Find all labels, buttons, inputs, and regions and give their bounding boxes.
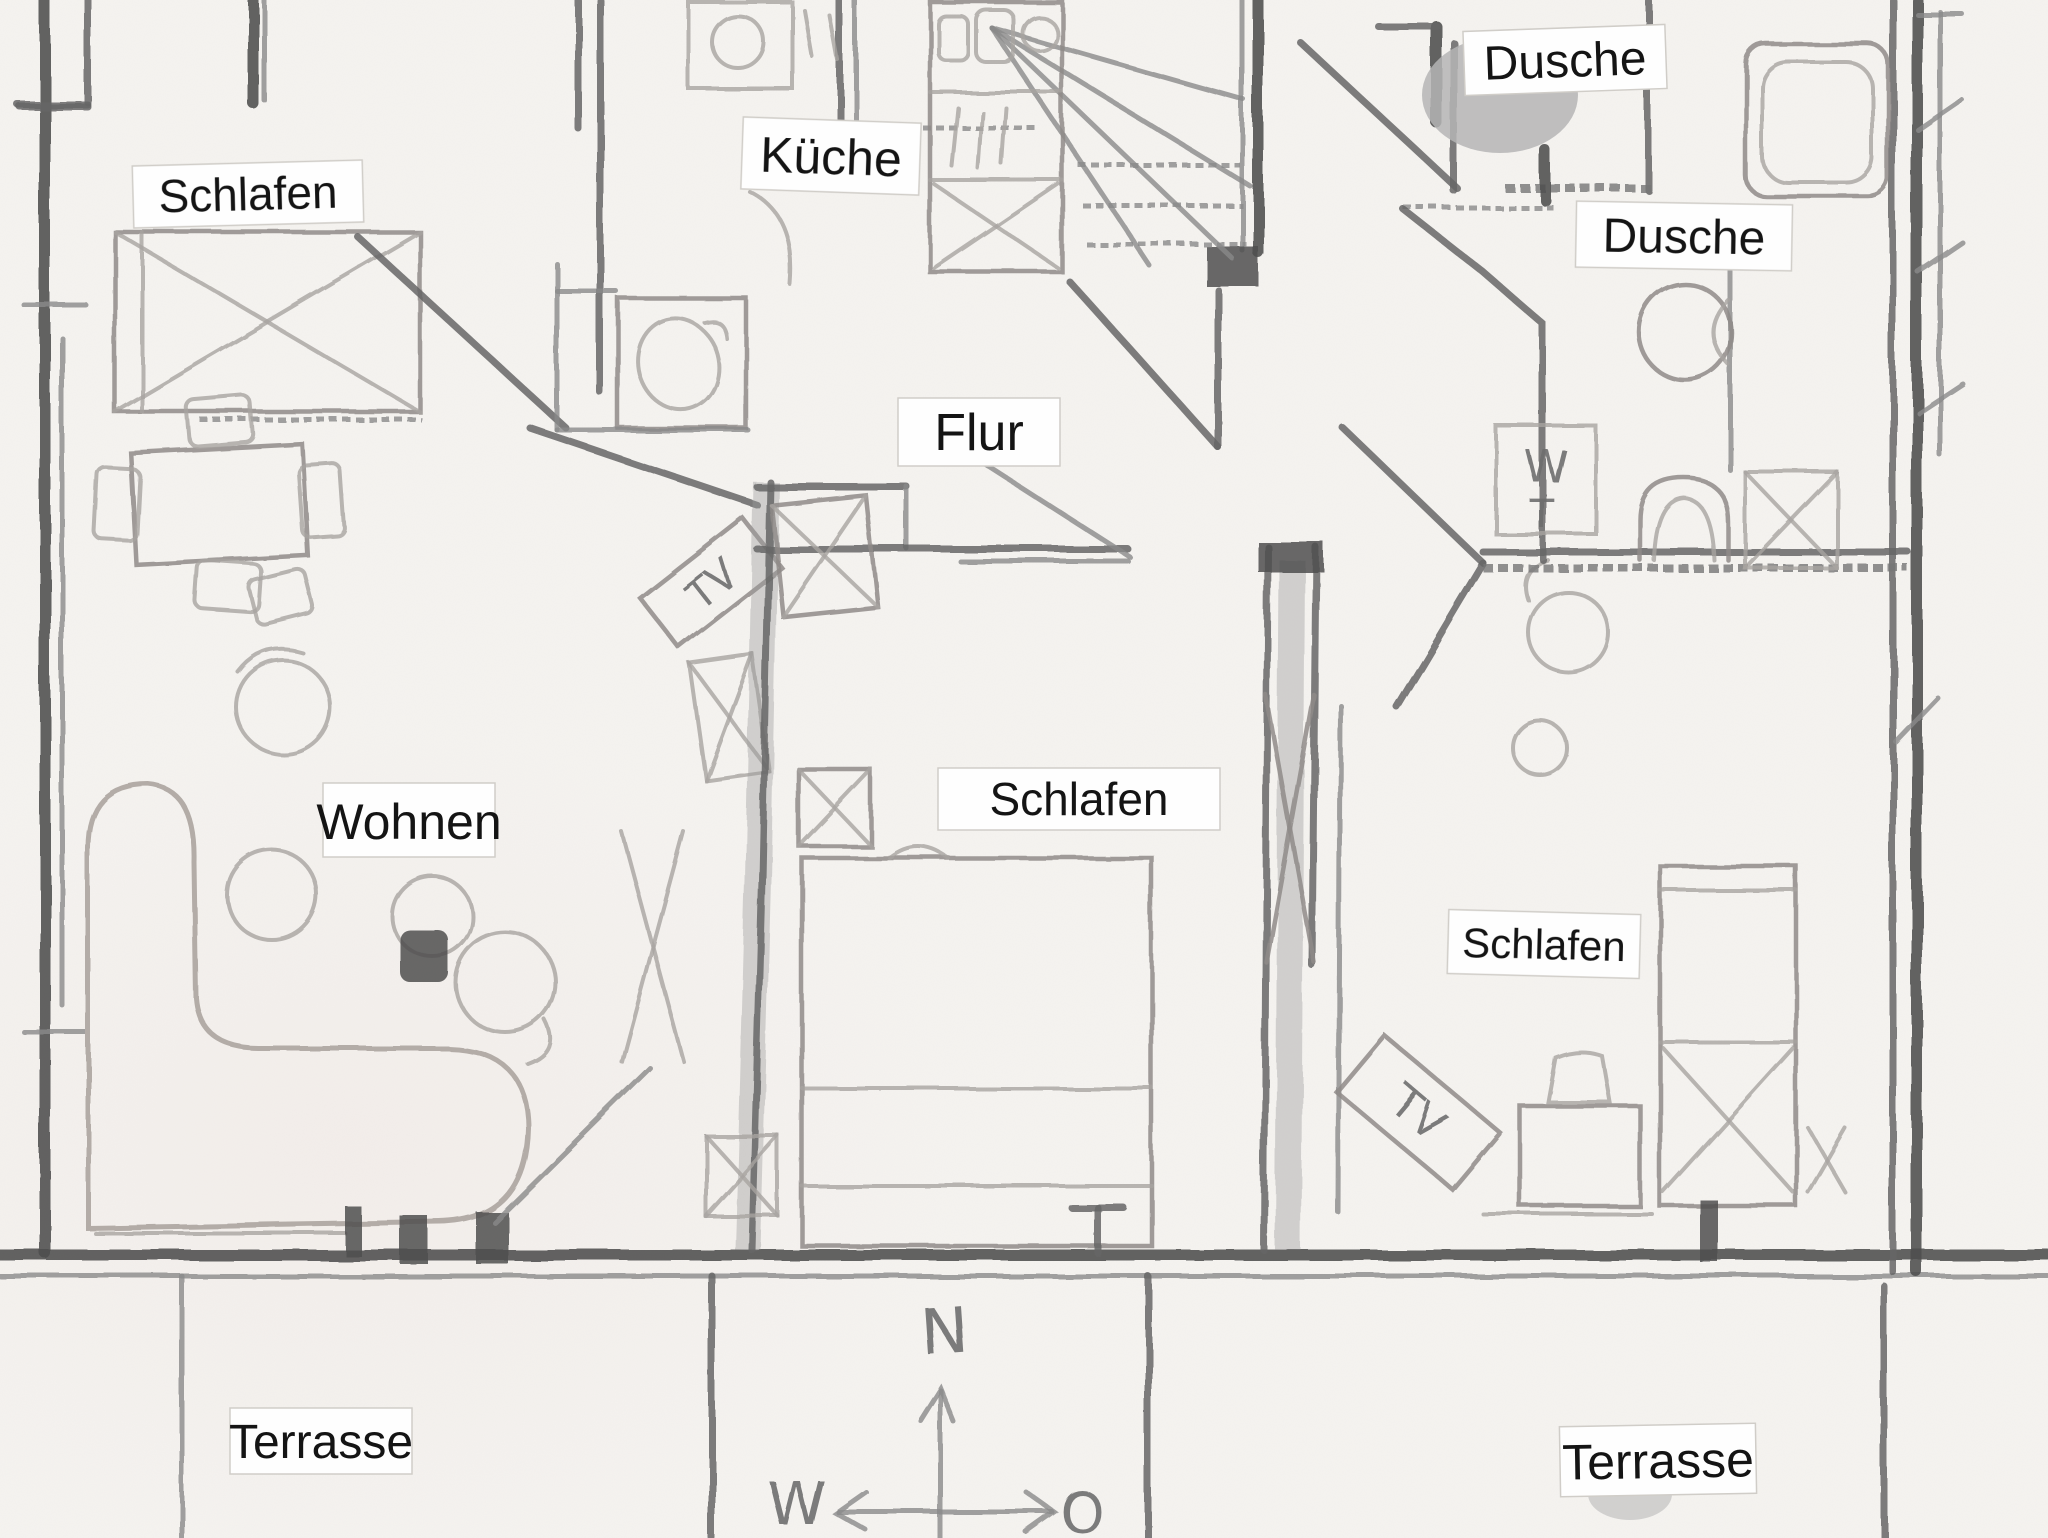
floor-plan-sketch: TV [0, 0, 2048, 1538]
svg-text:Schlafen: Schlafen [989, 773, 1168, 825]
stove-icon [400, 930, 448, 982]
svg-text:Dusche: Dusche [1602, 210, 1766, 266]
room-label-dusche-right: Dusche [1575, 201, 1792, 271]
room-label-kueche: Küche [741, 117, 921, 195]
room-label-schlafen-center: Schlafen [938, 768, 1220, 830]
svg-text:Wohnen: Wohnen [316, 794, 501, 850]
svg-text:Dusche: Dusche [1483, 32, 1648, 91]
room-label-terrasse-left: Terrasse [229, 1408, 413, 1474]
compass-north-label: N [919, 1294, 972, 1371]
room-label-flur: Flur [898, 398, 1060, 466]
washstand-w-label: W [1524, 442, 1568, 493]
svg-text:Terrasse: Terrasse [1562, 1431, 1755, 1490]
room-label-schlafen-top-left: Schlafen [132, 160, 364, 228]
room-label-dusche-top: Dusche [1463, 24, 1667, 95]
compass-east-label: O [1060, 1481, 1104, 1538]
room-label-schlafen-right: Schlafen [1447, 910, 1641, 979]
svg-text:Terrasse: Terrasse [229, 1416, 413, 1469]
room-label-wohnen: Wohnen [316, 783, 501, 857]
washstand-t-label: T [1529, 492, 1555, 538]
compass-west-label: W [766, 1469, 825, 1538]
svg-text:Küche: Küche [759, 127, 903, 188]
svg-text:Schlafen: Schlafen [1462, 919, 1627, 970]
svg-text:Schlafen: Schlafen [158, 166, 338, 223]
room-label-terrasse-right: Terrasse [1559, 1423, 1756, 1496]
svg-text:Flur: Flur [934, 404, 1024, 462]
